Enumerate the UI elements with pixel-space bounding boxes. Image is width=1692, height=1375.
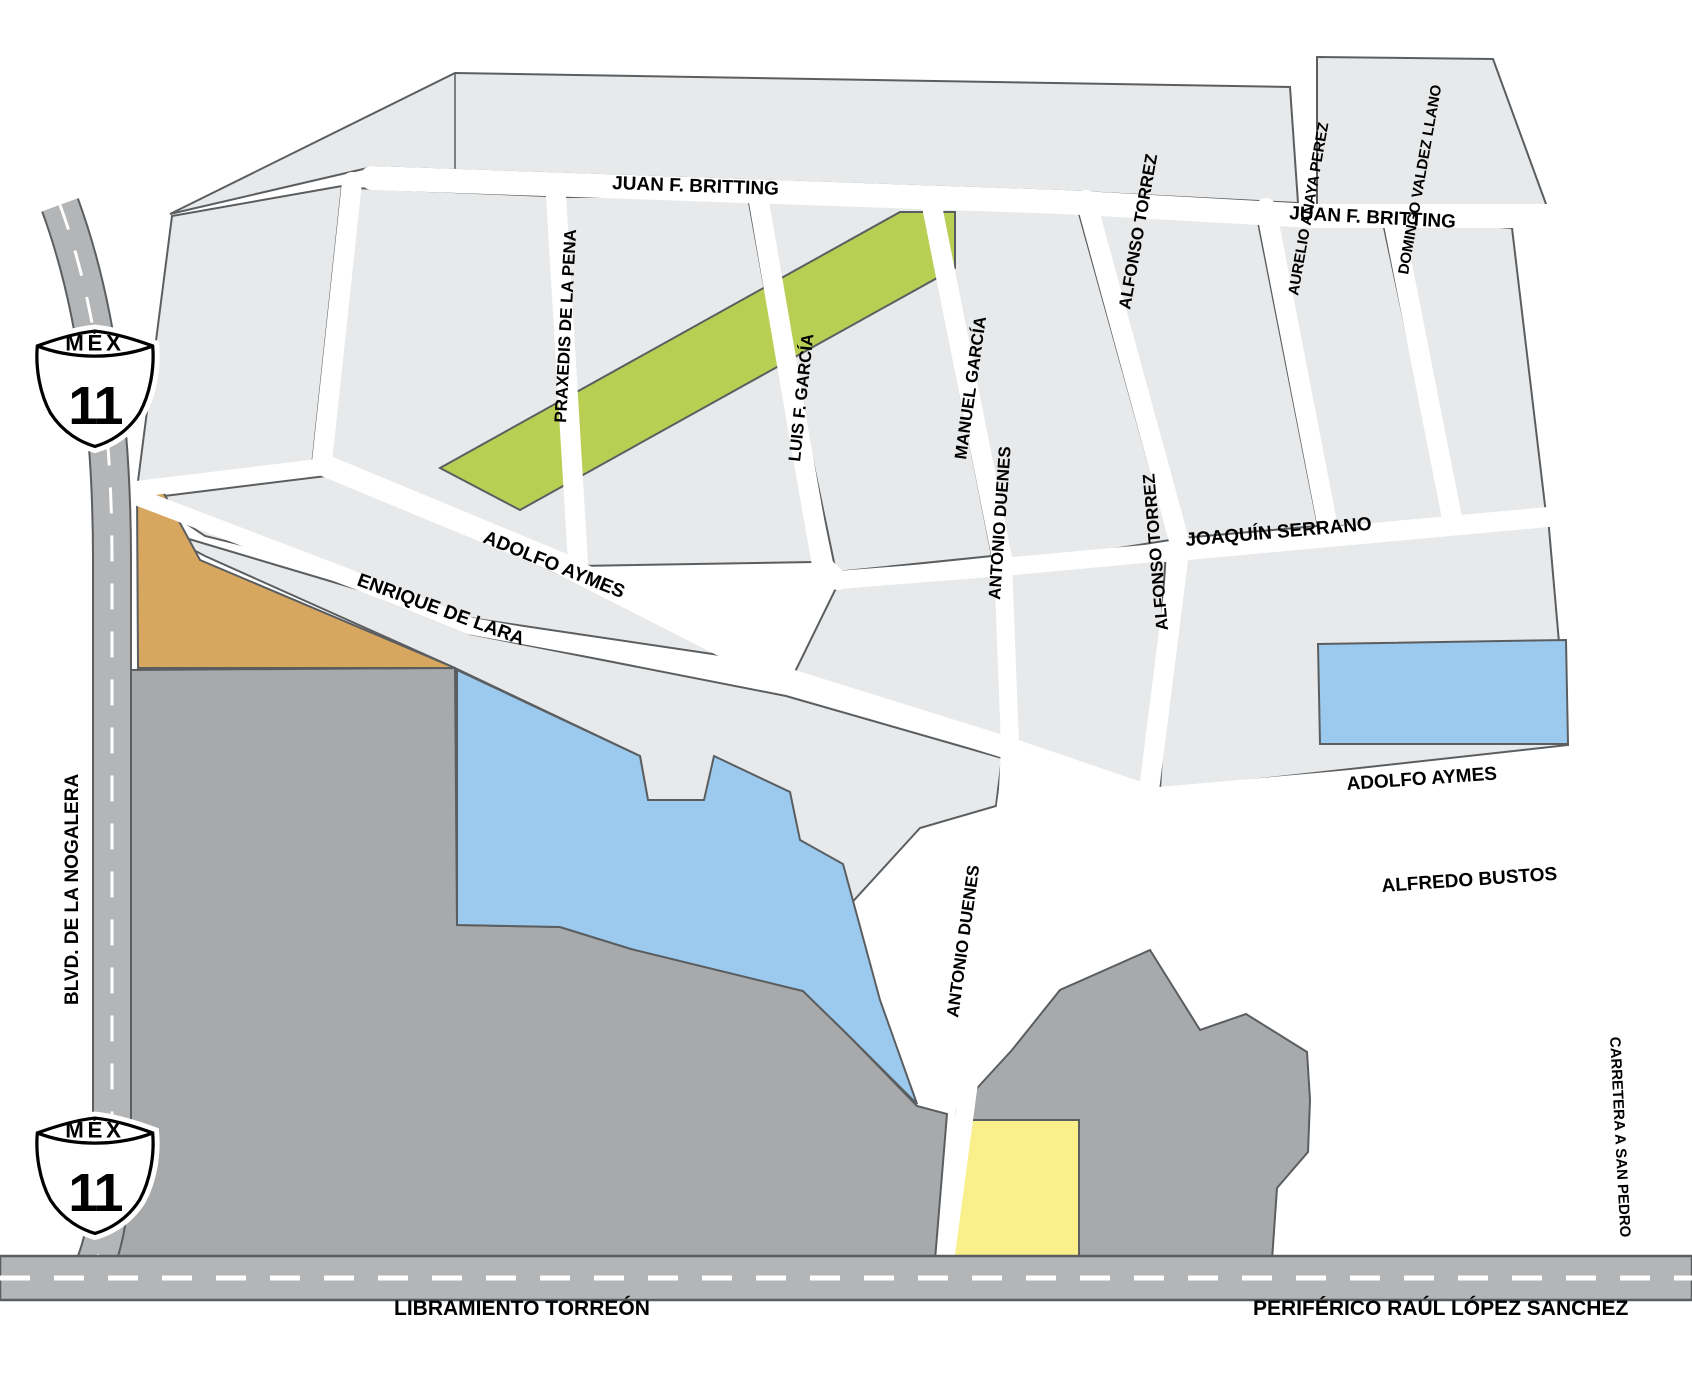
svg-text:MÉX: MÉX — [65, 331, 125, 356]
svg-text:MÉX: MÉX — [65, 1118, 125, 1143]
svg-text:11: 11 — [68, 1163, 122, 1223]
svg-text:BLVD. DE LA NOGALERA: BLVD. DE LA NOGALERA — [62, 774, 83, 1005]
svg-text:PERIFÉRICO RAÚL LÓPEZ SANCHEZ: PERIFÉRICO RAÚL LÓPEZ SANCHEZ — [1253, 1296, 1628, 1320]
svg-text:11: 11 — [68, 376, 122, 436]
svg-text:LIBRAMIENTO TORREÓN: LIBRAMIENTO TORREÓN — [394, 1296, 650, 1320]
